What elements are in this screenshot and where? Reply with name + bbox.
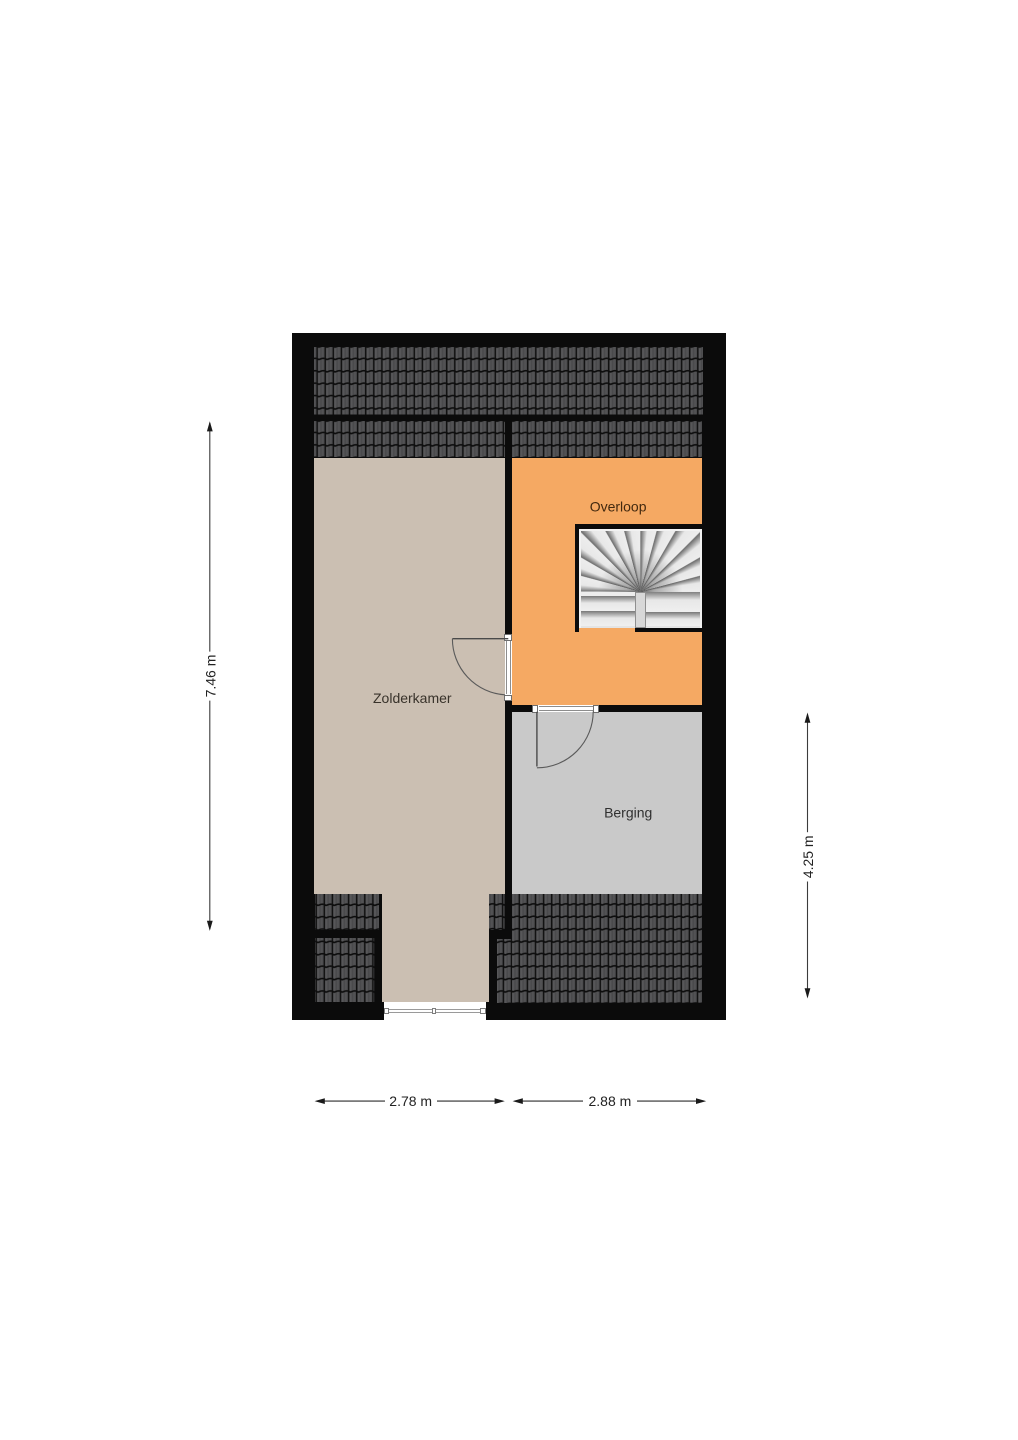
svg-text:2.88 m: 2.88 m xyxy=(588,1093,631,1109)
svg-text:4.25 m: 4.25 m xyxy=(800,835,816,878)
svg-text:7.46 m: 7.46 m xyxy=(202,655,218,698)
svg-text:2.78 m: 2.78 m xyxy=(389,1093,432,1109)
svg-text:Zolderkamer: Zolderkamer xyxy=(373,690,452,706)
svg-text:Berging: Berging xyxy=(604,805,652,821)
svg-text:Overloop: Overloop xyxy=(590,499,647,515)
